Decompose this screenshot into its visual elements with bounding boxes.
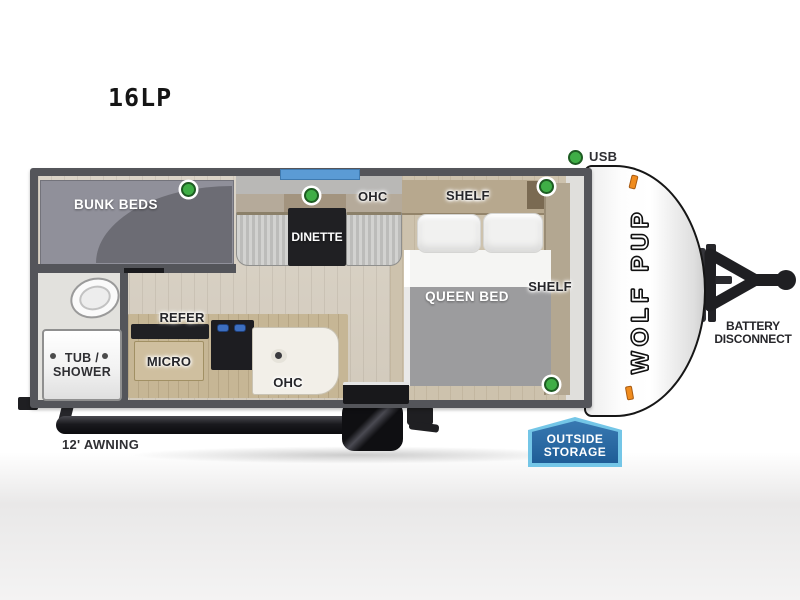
tub-knob-left [50,353,56,359]
battery-label-line2: DISCONNECT [700,333,800,346]
microwave: MICRO [134,341,204,381]
usb-legend-label: USB [589,149,617,164]
kitchen-ohc-label: OHC [268,375,308,390]
bath-door-swing [124,268,164,273]
awning-label: 12' AWNING [62,437,139,452]
hitch-assembly [692,244,800,330]
tub-knob-right [102,353,108,359]
refer-label: REFER [152,310,212,325]
usb-indicator-dot-dinette [304,188,319,203]
kitchen-sink [271,349,287,363]
usb-indicator-dot-bed-top [539,179,554,194]
dinette-ohc-label: OHC [358,189,388,204]
dinette-bench-right [346,212,402,266]
battery-disconnect-label: BATTERY DISCONNECT [700,320,800,346]
shelf-side-label: SHELF [527,279,573,294]
tub-label-line2: SHOWER [53,365,111,379]
step-bracket-foot [409,421,440,433]
page-title: 16LP [108,83,172,112]
ground-shading [0,452,800,600]
pillow-right [483,213,543,253]
window-strip [280,169,360,180]
shelf-front-label: SHELF [446,188,490,203]
refrigerator [131,324,209,339]
usb-indicator-dot-bunk [181,182,196,197]
dinette-bench-left [236,212,290,266]
usb-legend-dot [568,150,583,165]
stove-burner [234,324,246,332]
usb-indicator-dot-bed-bottom [544,377,559,392]
wheel [342,401,403,451]
dinette-label: DINETTE [291,230,342,244]
floorplan-diagram: 16LP USB WOLF PUP BATTERY DISCONNECT 12'… [0,0,800,600]
stove [211,320,254,370]
brand-logo: WOLF PUP [620,200,662,382]
outside-storage-line2: STORAGE [544,446,607,459]
micro-label: MICRO [147,354,191,369]
bunk-beds-label: BUNK BEDS [74,197,158,212]
entry-step [343,382,409,404]
tub-shower: TUB / SHOWER [42,329,122,401]
awning-tube [56,416,374,434]
queen-bed-label: QUEEN BED [419,289,515,304]
dinette-table: DINETTE [288,208,346,266]
outside-storage-badge: OUTSIDE STORAGE [528,417,622,467]
outside-storage-badge-inner: OUTSIDE STORAGE [532,421,618,463]
stove-burner [217,324,229,332]
pillow-left [417,214,481,253]
tub-label-line1: TUB / [65,351,99,365]
